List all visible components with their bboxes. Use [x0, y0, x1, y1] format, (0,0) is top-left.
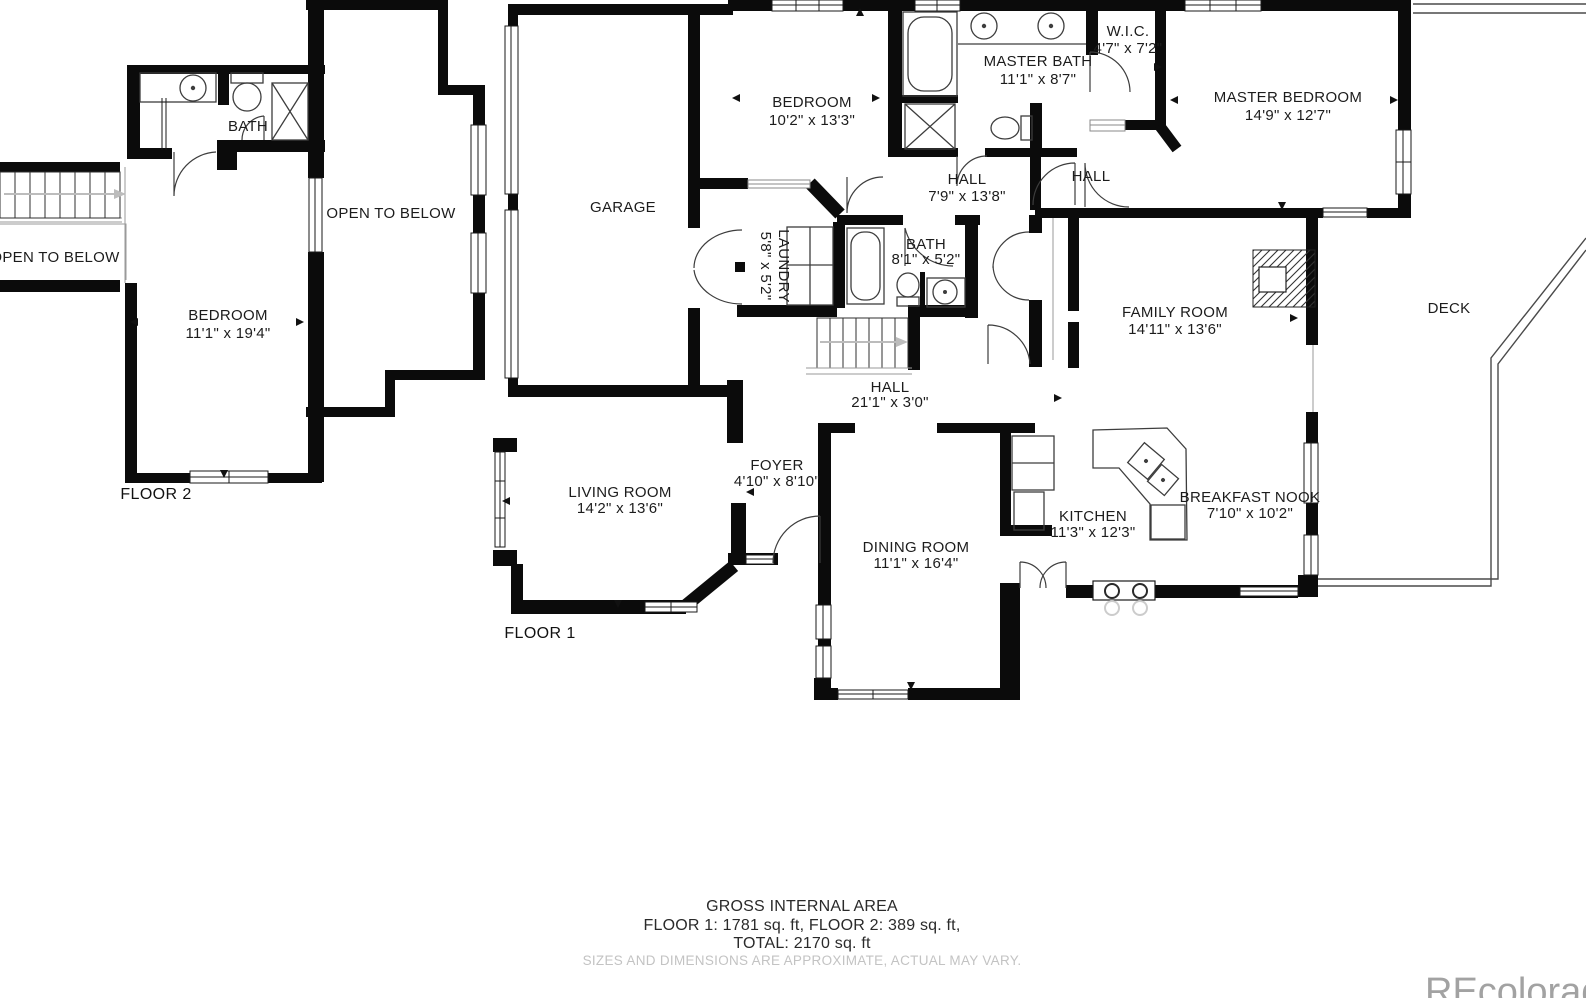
f2-stairs: [0, 172, 126, 218]
f1-bedroom-diagonal-wall: [810, 183, 840, 214]
dining-left-window-1: [816, 605, 831, 639]
hall-upper-label: HALL: [948, 171, 987, 188]
f2-toilet-icon: [233, 83, 261, 111]
f1-bedroom-window: [772, 0, 843, 11]
hall-long-dims: 21'1" x 3'0": [851, 394, 929, 411]
living-room-label: LIVING ROOM: [568, 484, 671, 501]
living-bottom-window: [645, 602, 697, 612]
f2-open-below-right-label: OPEN TO BELOW: [326, 205, 456, 222]
family-room-dims: 14'11" x 13'6": [1128, 321, 1222, 338]
f1-toilet-icon: [897, 273, 919, 297]
front-door: [773, 516, 820, 563]
nook-right-window-2: [1304, 535, 1318, 575]
floor2-plan: BATH OPEN TO BELOW OPEN TO BELOW BEDROOM…: [0, 0, 486, 503]
laundry-door-upper: [694, 230, 742, 268]
foyer-dims: 4'10" x 8'10": [734, 473, 820, 490]
master-toilet-icon: [991, 117, 1019, 139]
kitchen-entry-door: [988, 325, 1030, 364]
master-bedroom-top-window: [1185, 0, 1261, 11]
foyer-window: [746, 555, 774, 564]
hall-small-label: HALL: [1072, 168, 1111, 185]
garage-label: GARAGE: [590, 199, 656, 216]
dining-left-window-2: [816, 646, 831, 678]
floor1-label: FLOOR 1: [504, 625, 575, 642]
f1-bedroom-door: [847, 177, 883, 213]
f2-right-window-1: [471, 125, 486, 195]
dining-bottom-window: [838, 690, 908, 699]
hall-closet-door-lower: [993, 266, 1029, 300]
wic-closet-header: [1090, 120, 1125, 131]
f1-bedroom-dims: 10'2" x 13'3": [769, 112, 855, 129]
f1-wic-diagonal-wall: [1159, 125, 1177, 149]
floorplan-canvas: BATH OPEN TO BELOW OPEN TO BELOW BEDROOM…: [0, 0, 1586, 998]
hall-closet-door-upper: [993, 232, 1029, 268]
footer-disclaimer: SIZES AND DIMENSIONS ARE APPROXIMATE, AC…: [583, 953, 1022, 968]
laundry-door-lower: [694, 270, 742, 304]
footer-total: TOTAL: 2170 sq. ft: [733, 935, 871, 952]
f2-right-window-2: [471, 233, 486, 293]
master-bedroom-right-window: [1396, 130, 1411, 194]
family-room-label: FAMILY ROOM: [1122, 304, 1228, 321]
f1-bath-dims: 8'1" x 5'2": [892, 251, 961, 268]
f2-bedroom-window: [190, 471, 268, 483]
fireplace-icon: [1253, 250, 1315, 307]
f1-bedroom-label: BEDROOM: [772, 94, 852, 111]
f2-windows: [190, 125, 486, 483]
kitchen-label: KITCHEN: [1059, 508, 1127, 525]
footer: GROSS INTERNAL AREA FLOOR 1: 1781 sq. ft…: [583, 898, 1022, 968]
f1-stairs-arrow: [896, 337, 908, 347]
f1-living-diagonal-wall: [684, 566, 734, 607]
cooktop-icon: [1093, 581, 1155, 615]
watermark: REcolorado: [1425, 971, 1586, 998]
nook-bottom-window: [1240, 587, 1298, 596]
f2-bath-label: BATH: [228, 118, 268, 135]
master-bath-label: MASTER BATH: [984, 53, 1093, 70]
master-bath-dims: 11'1" x 8'7": [1000, 71, 1076, 88]
f1-stairs: [806, 318, 912, 374]
wic-dims: 4'7" x 7'2": [1094, 40, 1163, 57]
hall-upper-dims: 7'9" x 13'8": [928, 188, 1006, 205]
wic-label: W.I.C.: [1107, 23, 1150, 40]
dining-room-dims: 11'1" x 16'4": [873, 555, 958, 572]
f2-interior-window: [309, 178, 322, 252]
master-bath-window: [915, 0, 960, 11]
floor2-label: FLOOR 2: [120, 486, 191, 503]
kitchen-dims: 11'3" x 12'3": [1050, 524, 1135, 541]
f2-bedroom-dims: 11'1" x 19'4": [185, 325, 270, 342]
breakfast-nook-label: BREAKFAST NOOK: [1180, 489, 1321, 506]
breakfast-nook-dims: 7'10" x 10'2": [1207, 505, 1293, 522]
laundry-dims: 5'8" x 5'2": [757, 232, 774, 301]
master-bedroom-bottom-window: [1323, 208, 1367, 217]
footer-areas: FLOOR 1: 1781 sq. ft, FLOOR 2: 389 sq. f…: [644, 917, 961, 934]
f2-open-below-left-label: OPEN TO BELOW: [0, 249, 120, 266]
f2-bath-door: [174, 152, 216, 196]
f2-toilet-tank: [231, 73, 263, 83]
patio-door-left: [1020, 562, 1046, 588]
wic-door: [1090, 52, 1130, 92]
dining-room-label: DINING ROOM: [863, 539, 970, 556]
living-left-window: [495, 452, 505, 547]
floor1-plan: GARAGE BEDROOM 10'2" x 13'3" MASTER BATH…: [493, 0, 1586, 700]
kitchen-appliance: [1151, 505, 1185, 539]
foyer-label: FOYER: [750, 457, 803, 474]
f2-bedroom-label: BEDROOM: [188, 307, 268, 324]
master-bedroom-dims: 14'9" x 12'7": [1245, 107, 1331, 124]
f2-pocket-door: [162, 98, 166, 150]
f2-vanity: [140, 73, 216, 102]
footer-title: GROSS INTERNAL AREA: [706, 898, 898, 915]
master-bedroom-label: MASTER BEDROOM: [1214, 89, 1362, 106]
laundry-label: LAUNDRY: [775, 229, 792, 303]
patio-door-right: [1040, 562, 1066, 588]
deck-label: DECK: [1428, 300, 1471, 317]
f1-bedroom-closet-header: [748, 180, 810, 188]
living-room-dims: 14'2" x 13'6": [577, 500, 663, 517]
pantry-cabinet: [1014, 492, 1044, 530]
